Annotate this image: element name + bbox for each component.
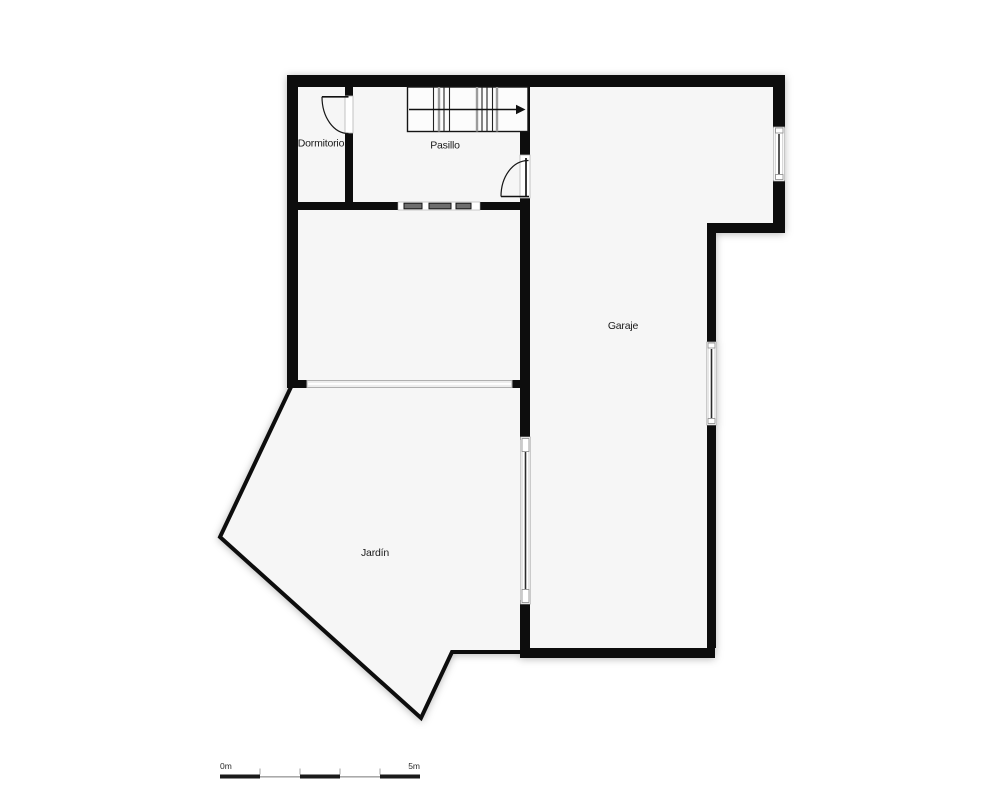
wall-garage-notch [707,223,785,233]
window-cap [776,175,784,180]
scale-segment-open [260,776,300,778]
window-cap [522,590,529,603]
window-pane [404,203,422,209]
wall-hall-south-left [287,202,399,210]
window-cap [708,419,715,424]
jardin-north-window-band [307,381,512,388]
room-label-dormitorio: Dormitorio [298,138,345,150]
wall-west-cap [287,380,308,388]
room-fill-garaje [528,80,780,653]
window-cap [708,343,715,348]
scale-bar: 0m 5m [220,761,420,779]
jardin-garage-window [521,437,531,604]
floor-plan-canvas: Dormitorio Pasillo Garaje Jardín 0m 5m [0,0,1000,800]
room-fills [220,80,780,719]
building: Dormitorio Pasillo Garaje Jardín [220,75,785,719]
wall-jardin-band-cap-right [511,380,530,388]
wall-garage-east-top [707,223,716,342]
room-label-jardin: Jardín [361,547,389,559]
pasillo-south-window [398,202,480,210]
wall-garage-west-middle [520,198,530,440]
wall-west [287,75,298,388]
scale-ticks [260,769,380,775]
wall-garage-south [528,648,715,658]
wall-north [287,75,785,87]
garage-east-inner-window [707,342,717,425]
scale-segment-filled [380,775,420,779]
room-label-pasillo: Pasillo [430,140,460,152]
garage-east-outer-window [774,127,785,181]
scale-segment-open [340,776,380,778]
scale-segment-filled [220,775,260,779]
door-opening [345,96,353,133]
floor-plan-page: Dormitorio Pasillo Garaje Jardín 0m 5m [0,0,1000,800]
scale-label-end: 5m [408,761,420,771]
wall-dormitorio-divider-bottom [345,133,353,210]
window-pane [429,203,451,209]
wall-garage-east-bottom [707,425,716,648]
room-label-garaje: Garaje [608,320,639,332]
window-glass [308,383,511,385]
stairs [408,87,529,132]
window-cap [522,439,529,452]
wall-dormitorio-divider-top [345,85,353,97]
scale-label-start: 0m [220,761,232,771]
window-pane [456,203,471,209]
scale-segment-filled [300,775,340,779]
wall-east-outer-top [773,75,785,128]
window-cap [776,128,784,133]
